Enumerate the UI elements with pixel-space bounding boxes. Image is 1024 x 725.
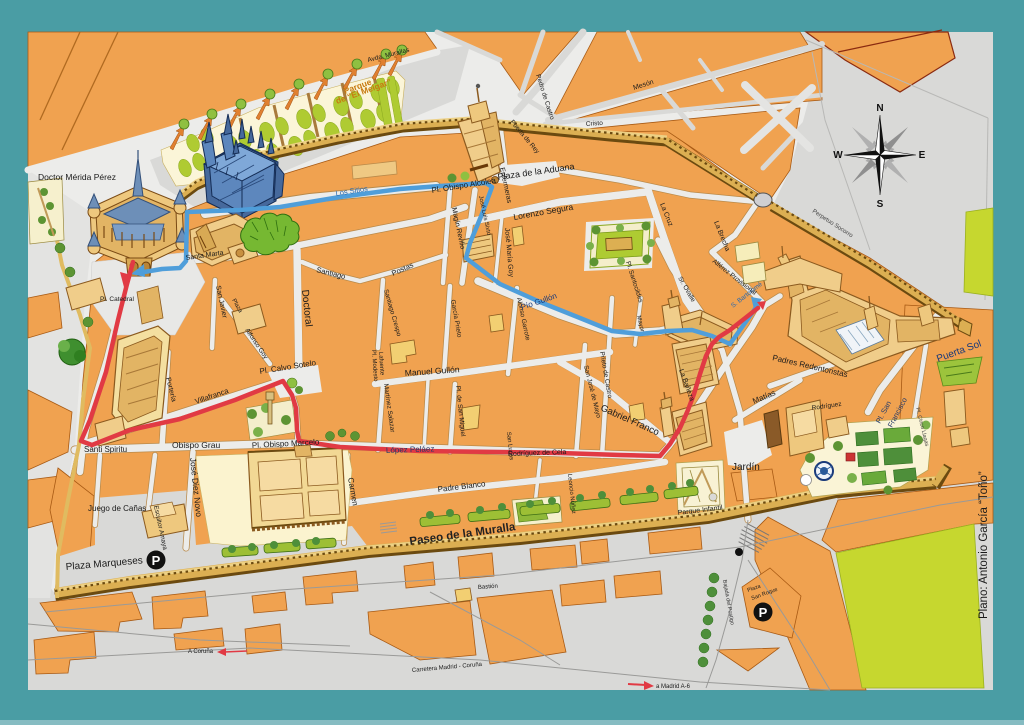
svg-text:a Madrid A-6: a Madrid A-6 [656, 684, 691, 690]
svg-text:S: S [877, 199, 884, 210]
svg-text:E: E [919, 150, 926, 161]
svg-text:Pl. Catedral: Pl. Catedral [100, 296, 135, 303]
svg-text:P: P [152, 553, 161, 568]
svg-text:W: W [833, 150, 843, 161]
svg-text:Doctor Mérida Pérez: Doctor Mérida Pérez [38, 172, 116, 182]
svg-text:Cristo: Cristo [586, 120, 604, 128]
svg-text:N: N [876, 103, 883, 114]
svg-text:Obispo Grau: Obispo Grau [172, 440, 220, 450]
svg-text:A Coruña: A Coruña [188, 649, 214, 655]
svg-text:Santi Spiritu: Santi Spiritu [84, 445, 127, 454]
svg-text:P: P [759, 605, 768, 620]
svg-text:Plano: Antonio García “Toño”: Plano: Antonio García “Toño” [978, 471, 990, 619]
svg-text:López Peláez: López Peláez [386, 444, 435, 455]
svg-text:Juego de Cañas: Juego de Cañas [88, 504, 146, 513]
svg-text:Jardín: Jardín [732, 462, 760, 473]
